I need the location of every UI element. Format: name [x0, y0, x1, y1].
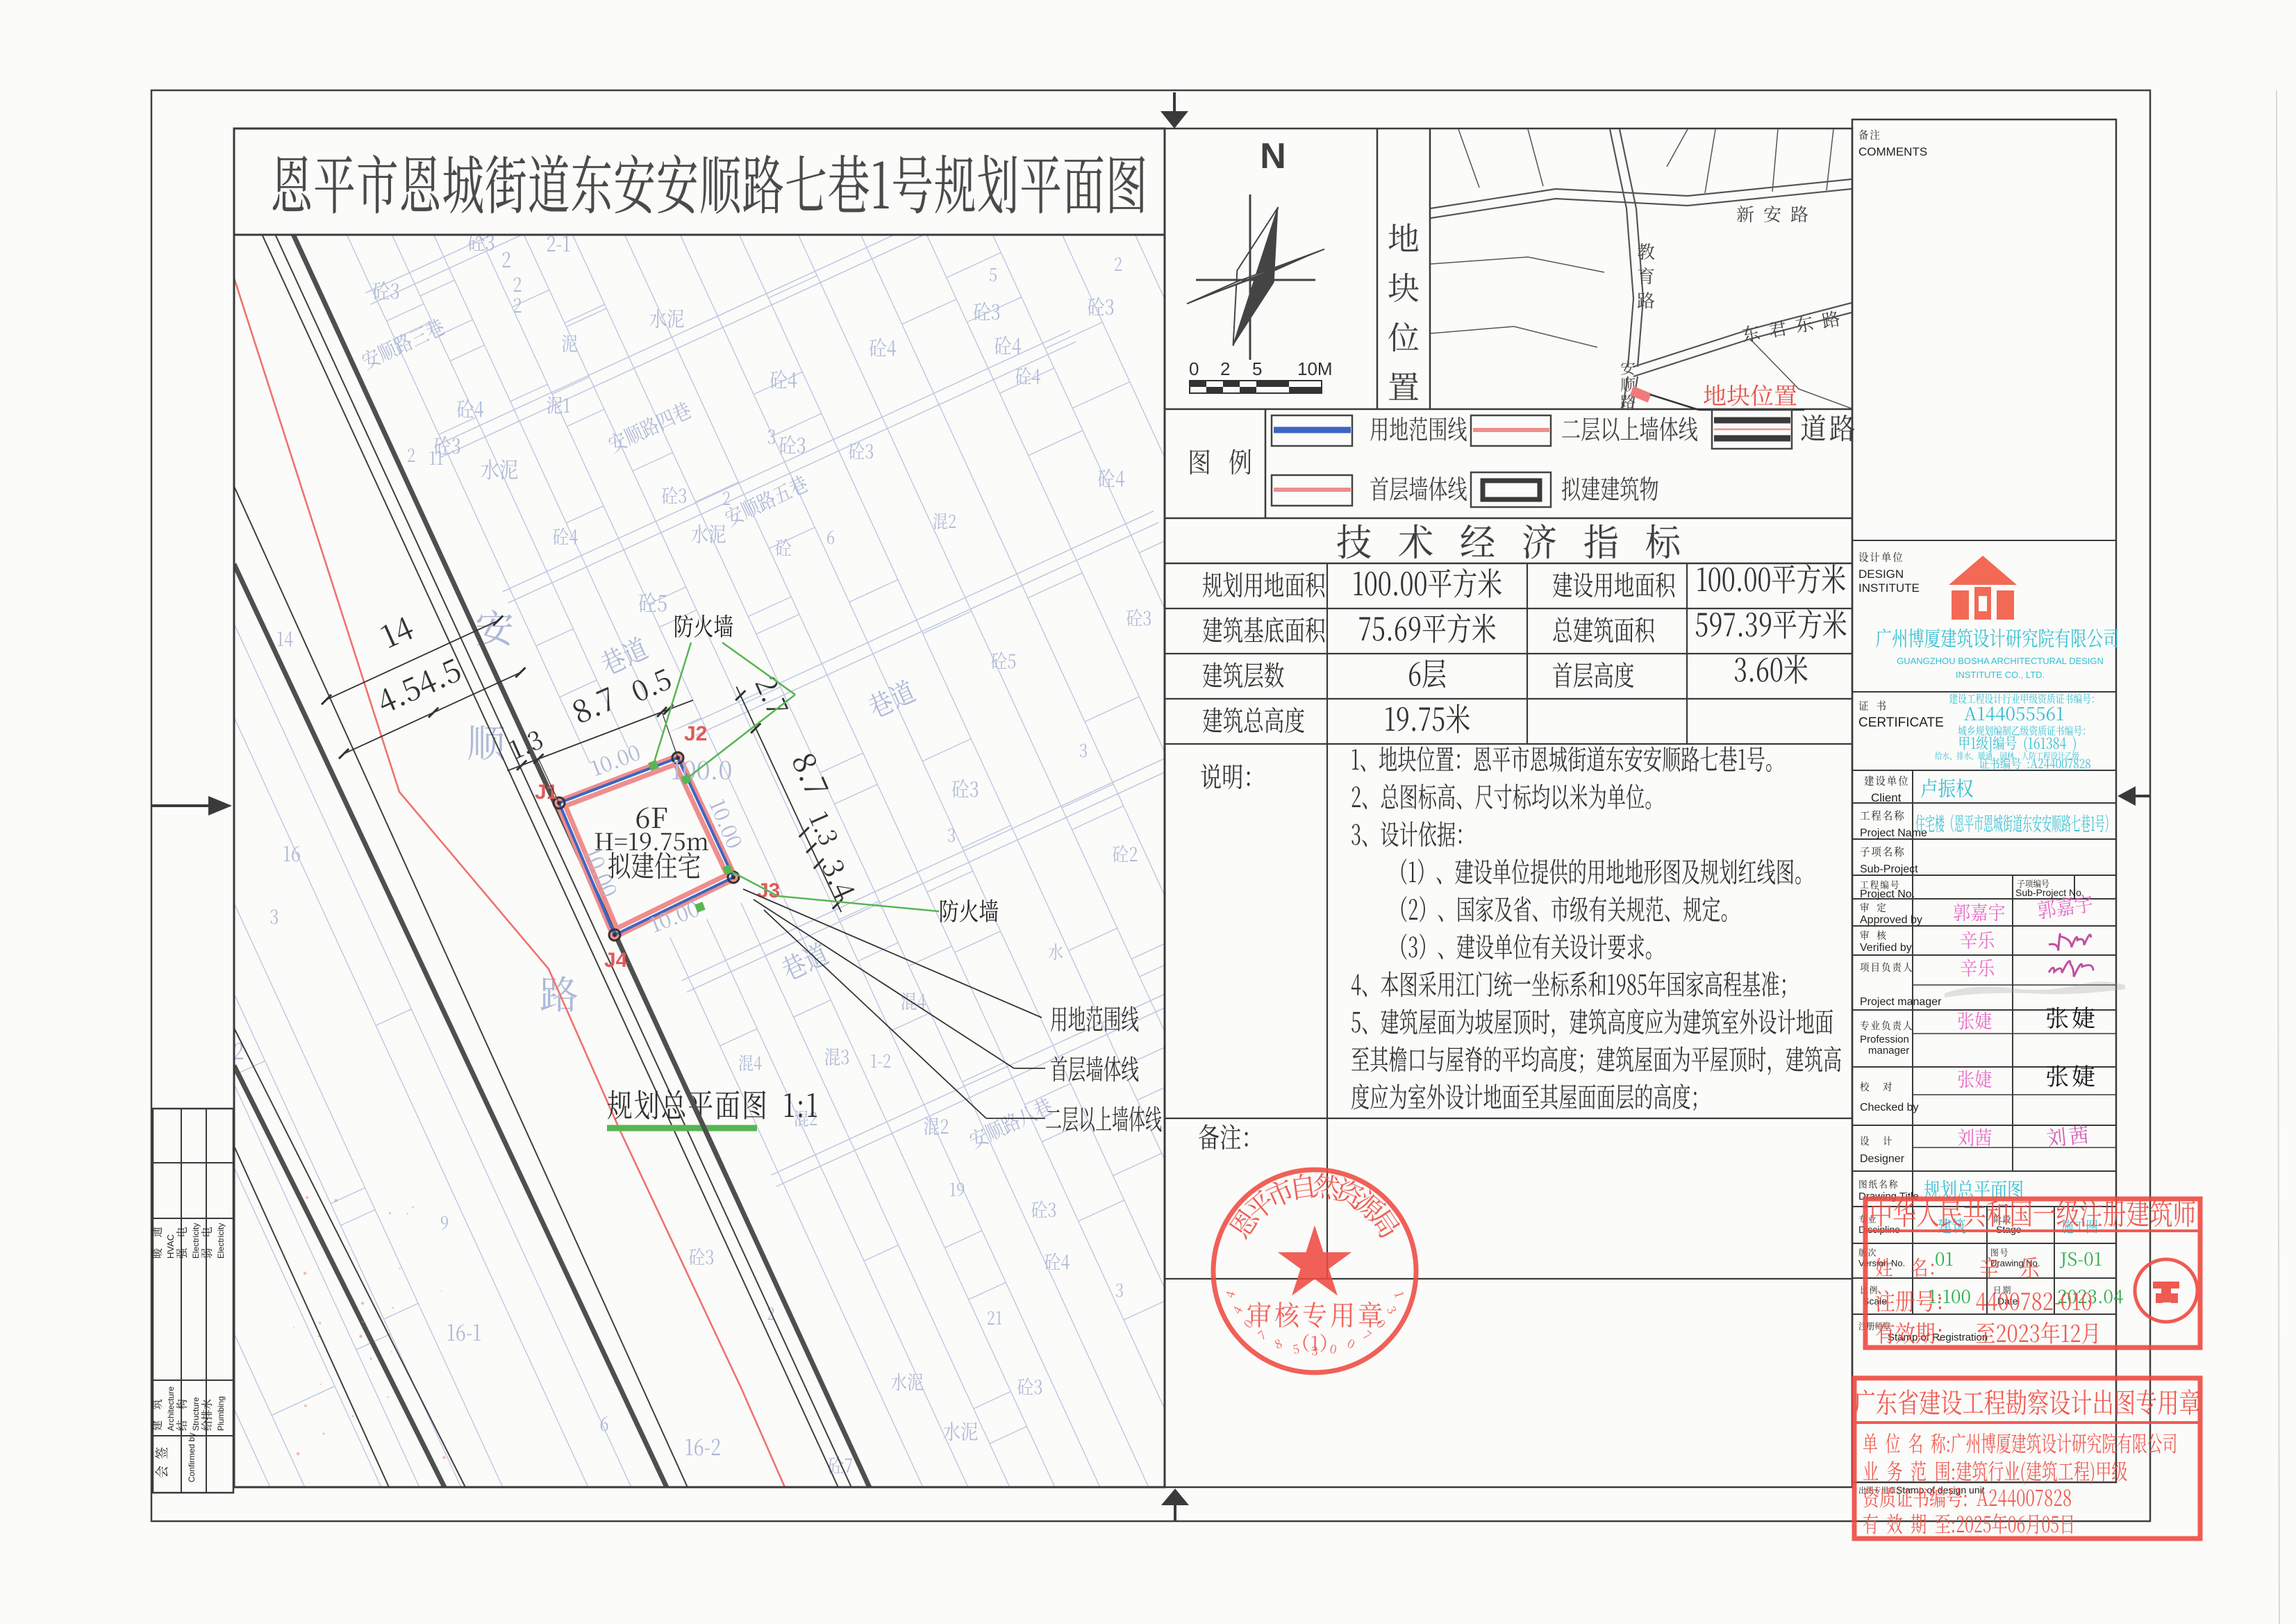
- svg-text:10M: 10M: [1297, 358, 1333, 379]
- svg-text:Sub-Project: Sub-Project: [1860, 863, 1918, 875]
- svg-text:Designer: Designer: [1860, 1153, 1905, 1165]
- svg-text:DESIGN: DESIGN: [1858, 567, 1904, 581]
- svg-text:Plumbing: Plumbing: [216, 1396, 226, 1431]
- svg-text:0: 0: [1189, 358, 1199, 379]
- svg-text:J2: J2: [684, 722, 707, 745]
- svg-text:Confirmed by: Confirmed by: [187, 1433, 197, 1482]
- svg-text:INSTITUTE: INSTITUTE: [1858, 581, 1920, 595]
- svg-text:5: 5: [1252, 358, 1262, 379]
- svg-text:Client: Client: [1871, 791, 1902, 804]
- svg-text:Checked by: Checked by: [1860, 1102, 1919, 1113]
- svg-text:Project No.: Project No.: [1860, 888, 1915, 900]
- svg-text:N: N: [1260, 136, 1286, 176]
- svg-text:Verified by: Verified by: [1860, 942, 1912, 954]
- svg-text:2: 2: [1220, 358, 1230, 379]
- svg-text:manager: manager: [1868, 1045, 1909, 1057]
- svg-text:Electricity: Electricity: [216, 1223, 226, 1259]
- svg-text:Structure: Structure: [191, 1397, 201, 1431]
- svg-text:CERTIFICATE: CERTIFICATE: [1858, 715, 1944, 730]
- svg-text:HVAC: HVAC: [165, 1234, 176, 1259]
- svg-text:INSTITUTE CO., LTD.: INSTITUTE CO., LTD.: [1956, 670, 2045, 680]
- svg-text:Approved by: Approved by: [1860, 914, 1922, 926]
- svg-text:COMMENTS: COMMENTS: [1858, 145, 1927, 158]
- svg-text:Architecture: Architecture: [166, 1386, 176, 1431]
- svg-text:GUANGZHOU BOSHA ARCHITECTURAL: GUANGZHOU BOSHA ARCHITECTURAL DESIGN: [1897, 656, 2104, 666]
- svg-text:Electricity: Electricity: [191, 1223, 201, 1259]
- svg-text:Project manager: Project manager: [1860, 996, 1942, 1008]
- svg-text:Profession: Profession: [1860, 1034, 1909, 1045]
- svg-text:Sub-Project No.: Sub-Project No.: [2015, 887, 2084, 898]
- svg-text:J4: J4: [604, 949, 628, 972]
